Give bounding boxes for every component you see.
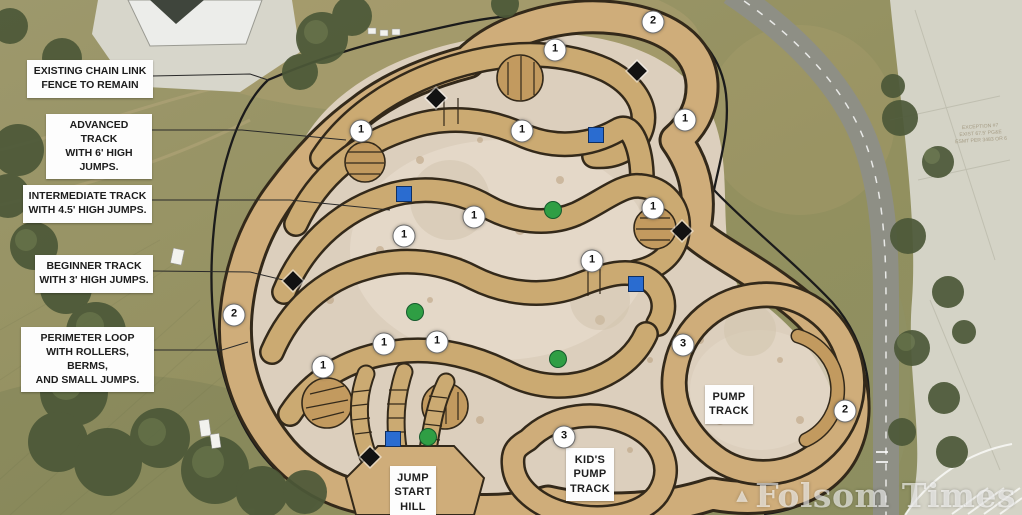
track-number-badge: 2 (642, 11, 665, 34)
difficulty-blue-square-marker (588, 127, 604, 143)
track-number-badge: 3 (553, 426, 576, 449)
marker-layer: 2111111112111323 (0, 0, 1022, 515)
folsom-times-watermark: ▲ Folsom Times (736, 476, 1016, 515)
difficulty-blue-square-marker (385, 431, 401, 447)
track-number-badge: 2 (834, 400, 857, 423)
difficulty-blue-square-marker (396, 186, 412, 202)
track-number-badge: 1 (312, 356, 335, 379)
track-number-badge: 1 (674, 109, 697, 132)
difficulty-black-diamond-marker (426, 88, 446, 108)
track-number-badge: 1 (426, 331, 449, 354)
difficulty-black-diamond-marker (283, 271, 303, 291)
difficulty-black-diamond-marker (627, 61, 647, 81)
track-number-badge: 3 (672, 334, 695, 357)
difficulty-black-diamond-marker (360, 447, 380, 467)
difficulty-blue-square-marker (628, 276, 644, 292)
site-plan-aerial: EXCEPTION #7EXIST 67.5' PG&EESMT PER 348… (0, 0, 1022, 515)
track-number-badge: 1 (581, 250, 604, 273)
track-number-badge: 1 (463, 206, 486, 229)
track-number-badge: 1 (544, 39, 567, 62)
difficulty-black-diamond-marker (672, 221, 692, 241)
folsom-times-watermark-text: Folsom Times (755, 476, 1016, 515)
track-number-badge: 1 (642, 197, 665, 220)
track-number-badge: 2 (223, 304, 246, 327)
track-number-badge: 1 (373, 333, 396, 356)
track-number-badge: 1 (350, 120, 373, 143)
track-number-badge: 1 (511, 120, 534, 143)
difficulty-green-circle-marker (544, 201, 562, 219)
difficulty-green-circle-marker (549, 350, 567, 368)
track-number-badge: 1 (393, 225, 416, 248)
difficulty-green-circle-marker (406, 303, 424, 321)
folsom-times-logo-icon: ▲ (736, 488, 748, 503)
difficulty-green-circle-marker (419, 428, 437, 446)
